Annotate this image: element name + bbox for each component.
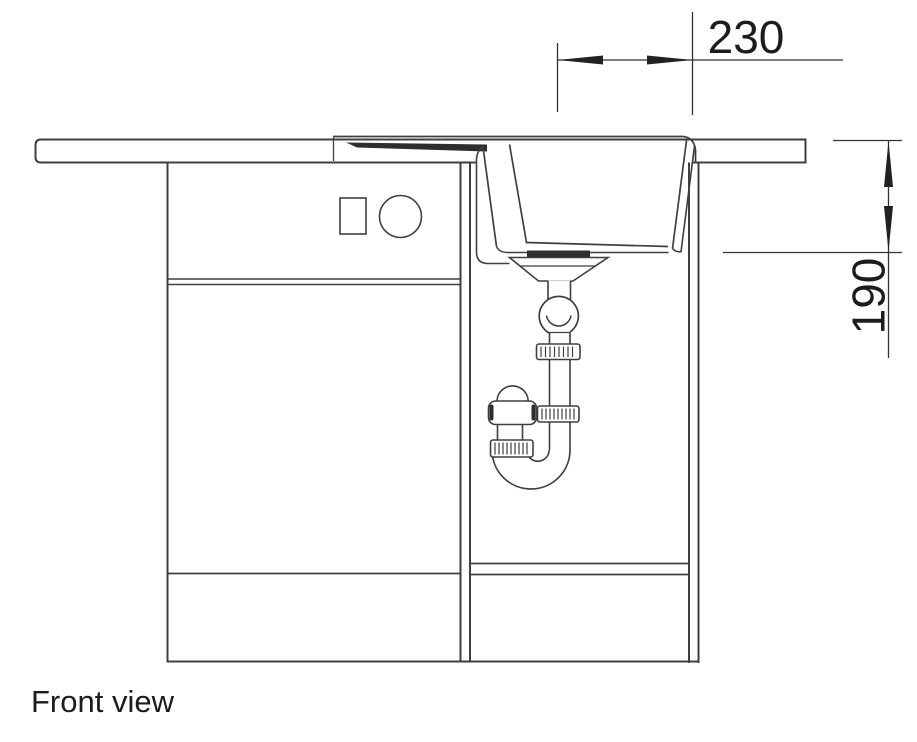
dim-190-arrow-up [884, 141, 893, 187]
knurled-nut-upper-body [537, 344, 581, 360]
view-caption: Front view [31, 684, 175, 719]
left-cabinet-divider [168, 279, 461, 285]
dimension-190: 190 [723, 141, 902, 359]
riser-dome-cap [497, 386, 528, 402]
collar-nut-ear-left [490, 405, 494, 421]
drain-funnel [510, 258, 609, 282]
knurled-nut-lower [491, 440, 534, 457]
dim-230-arrow-left [558, 56, 604, 65]
dim-230-arrow-right [647, 56, 693, 65]
drain-assembly [489, 251, 609, 490]
control-panel [340, 196, 422, 238]
dim-230-label: 230 [708, 11, 785, 63]
drain-gasket [527, 251, 590, 258]
dim-190-arrow-down [884, 206, 893, 252]
cabinets [167, 163, 699, 664]
ball-joint [539, 296, 578, 335]
sink-cabinet-drawing: 230 190 Front view [0, 0, 917, 742]
riser-tube [498, 425, 523, 442]
sink-cutout-mask [476, 147, 693, 171]
dim-190-label: 190 [843, 258, 895, 335]
collar-nut-ear-right [532, 405, 536, 421]
knurled-nut-upper [537, 344, 581, 360]
dimension-230: 230 [558, 11, 844, 115]
left-cabinet [168, 163, 461, 662]
collar-nut [489, 401, 537, 425]
technical-drawing-front-view: 230 190 Front view [0, 0, 917, 742]
control-dial-circle [380, 196, 422, 238]
knurled-nut-middle [538, 406, 580, 422]
control-button-square [340, 198, 366, 234]
right-cabinet-plinth-lines [470, 564, 689, 575]
